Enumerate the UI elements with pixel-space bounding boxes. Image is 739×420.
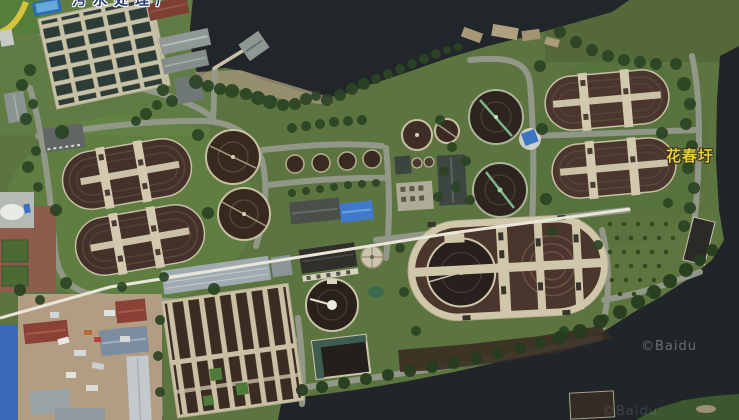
clarifier-r1 (469, 90, 523, 144)
square-basin (312, 335, 370, 379)
clarifier-l1 (206, 130, 260, 184)
clarifier-r2 (473, 163, 527, 217)
small-pond (368, 286, 384, 298)
satellite-map[interactable]: 污水处理厂 花春圩 ©Baidu ©Baidu (0, 0, 739, 420)
stadium-basin (406, 213, 611, 323)
clarifier-m1 (402, 120, 432, 150)
clarifier-b1 (306, 279, 358, 331)
satellite-imagery-canvas (0, 0, 739, 420)
small-white-tank (361, 246, 383, 268)
clarifier-l2 (218, 188, 270, 240)
